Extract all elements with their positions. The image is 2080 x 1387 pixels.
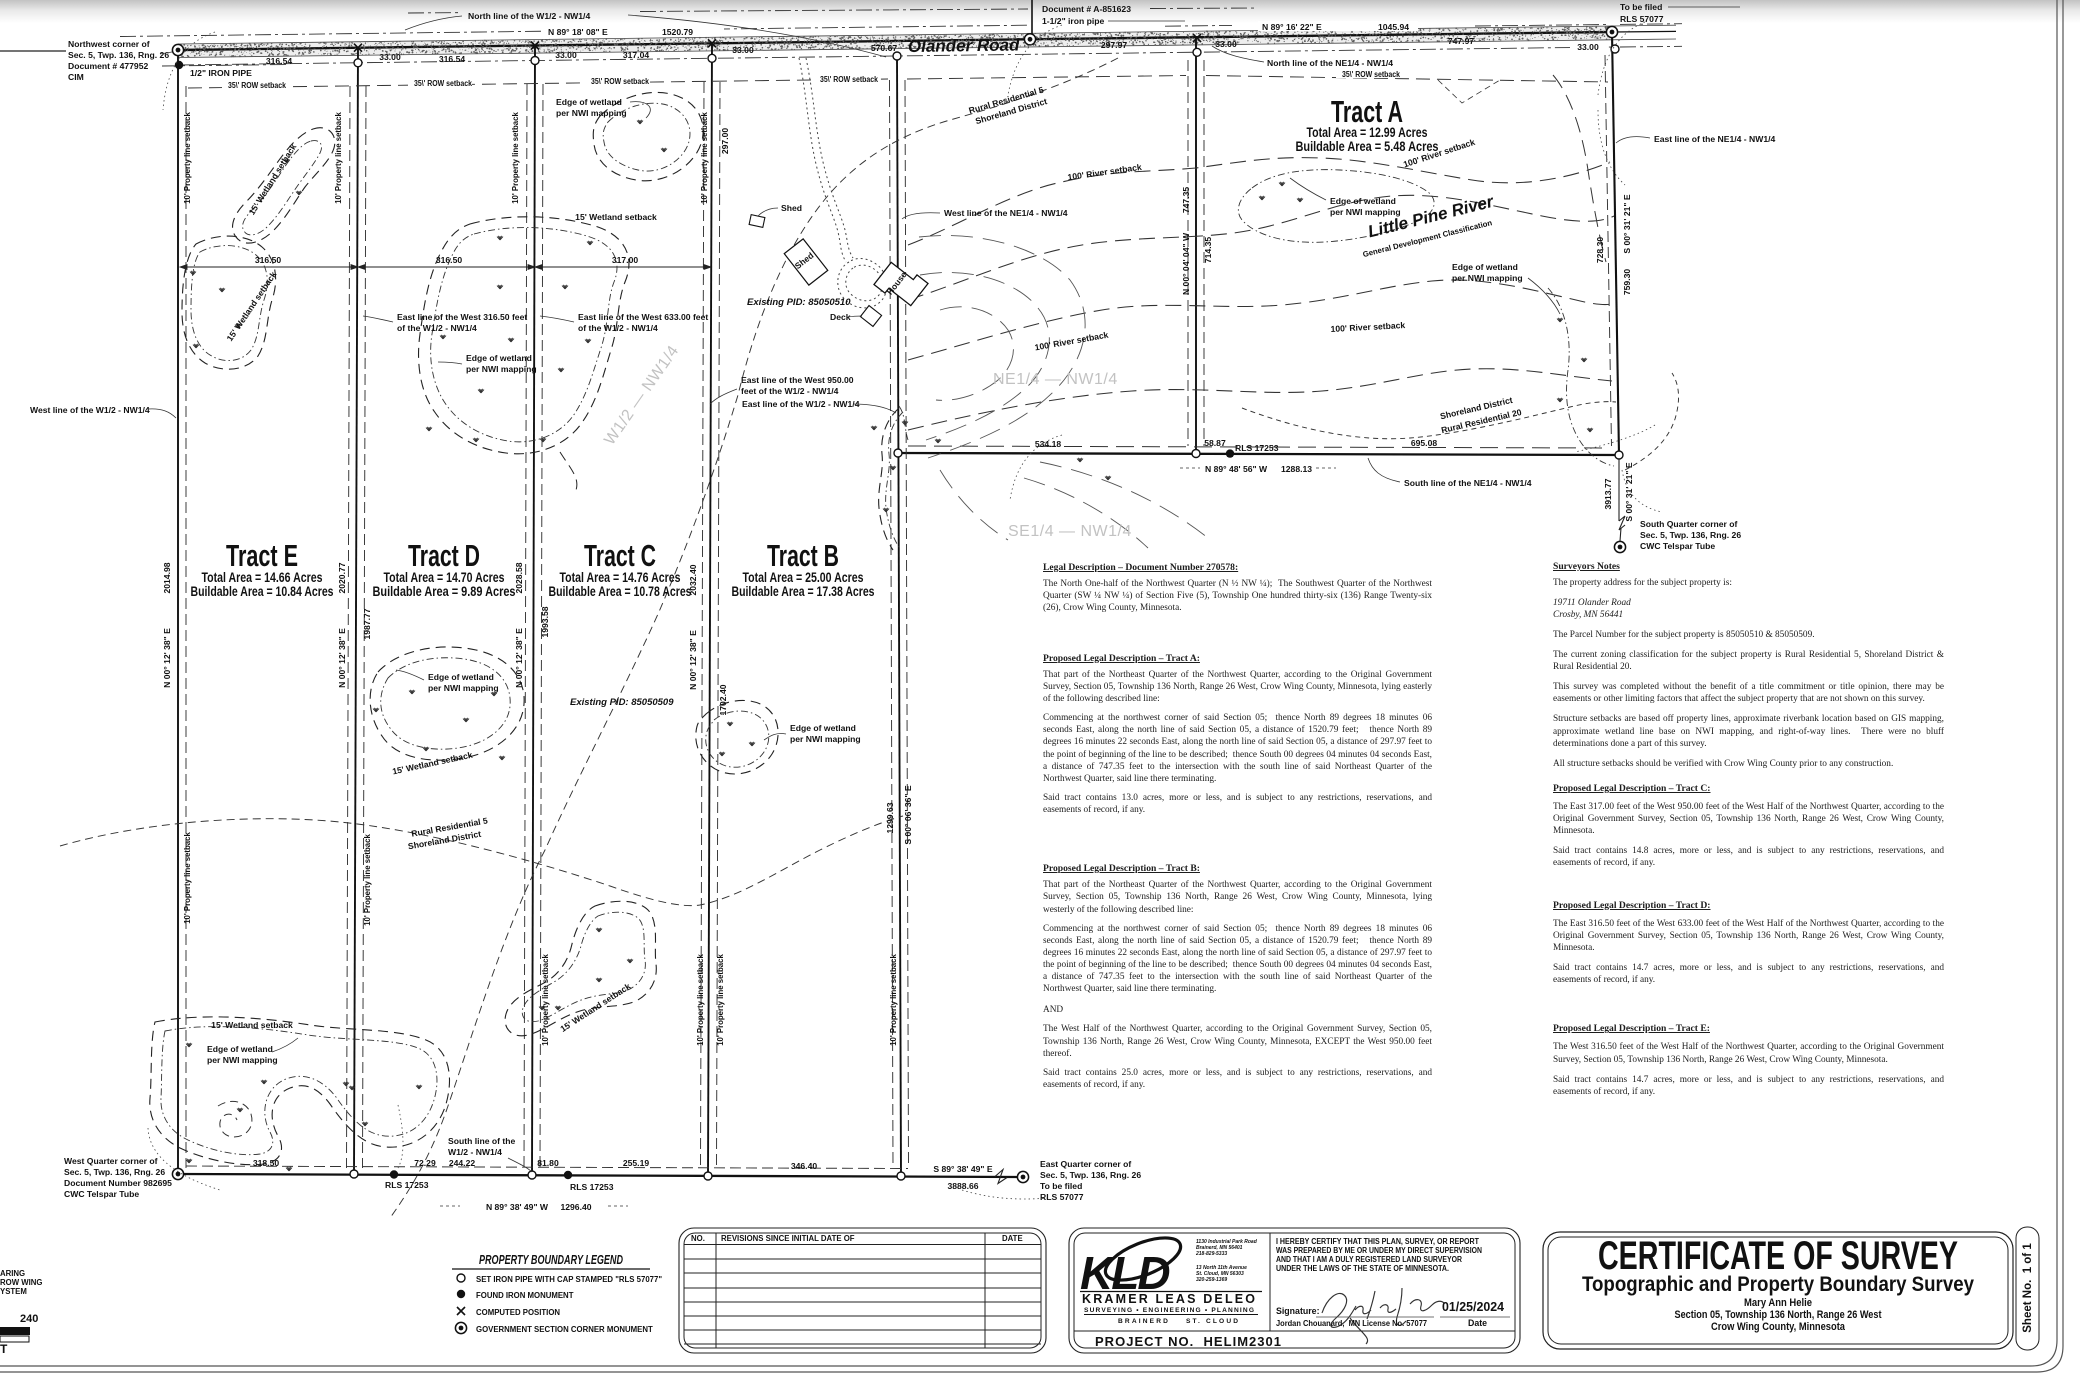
svg-text:S 00° 06' 36" E: S 00° 06' 36" E	[903, 785, 913, 845]
svg-text:1288.13: 1288.13	[1281, 464, 1312, 474]
svg-text:Northwest corner of: Northwest corner of	[68, 39, 150, 49]
svg-text:Total Area = 25.00 Acres: Total Area = 25.00 Acres	[743, 570, 864, 585]
svg-text:240: 240	[20, 1313, 38, 1325]
svg-text:244.22: 244.22	[449, 1158, 476, 1168]
svg-text:1-1/2" iron pipe: 1-1/2" iron pipe	[1042, 16, 1105, 26]
svg-text:2028.58: 2028.58	[514, 562, 524, 593]
svg-text:35\' ROW setback: 35\' ROW setback	[414, 78, 472, 88]
svg-text:Mary Ann Helie: Mary Ann Helie	[1744, 1297, 1812, 1309]
svg-text:3913.77: 3913.77	[1603, 478, 1613, 509]
svg-text:10' Property line setback: 10' Property line setback	[889, 954, 898, 1046]
svg-text:10' Property line setback: 10' Property line setback	[541, 954, 550, 1046]
svg-text:East line of the West 950.00: East line of the West 950.00	[741, 375, 854, 385]
svg-text:Document # 477952: Document # 477952	[68, 61, 148, 71]
svg-text:WAS PREPARED BY ME OR UNDER MY: WAS PREPARED BY ME OR UNDER MY DIRECT SU…	[1276, 1246, 1482, 1255]
svg-text:15' Wetland setback: 15' Wetland setback	[247, 142, 299, 217]
svg-text:per NWI mapping: per NWI mapping	[466, 364, 537, 374]
svg-text:317.00: 317.00	[612, 255, 639, 265]
svg-text:714.35: 714.35	[1203, 237, 1213, 264]
svg-text:759.30: 759.30	[1622, 269, 1632, 296]
svg-text:North line of the W1/2 - NW1/4: North line of the W1/2 - NW1/4	[468, 11, 590, 21]
svg-text:Edge of wetland: Edge of wetland	[1452, 262, 1518, 272]
svg-text:695.08: 695.08	[1411, 438, 1438, 448]
svg-text:Signature:: Signature:	[1276, 1306, 1320, 1316]
svg-text:West line of the W1/2 - NW1/4: West line of the W1/2 - NW1/4	[30, 405, 150, 415]
svg-text:10' Property line setback: 10' Property line setback	[696, 954, 705, 1046]
svg-text:Document # A-851623: Document # A-851623	[1042, 4, 1131, 14]
svg-text:10' Property line setback: 10' Property line setback	[511, 112, 520, 204]
svg-text:1299.63: 1299.63	[885, 802, 895, 833]
svg-text:15' Wetland setback: 15' Wetland setback	[391, 750, 473, 777]
svg-text:81.80: 81.80	[537, 1158, 559, 1168]
svg-text:N 89° 38' 49" W: N 89° 38' 49" W	[486, 1202, 549, 1212]
svg-text:255.19: 255.19	[623, 1158, 650, 1168]
svg-text:316.54: 316.54	[266, 56, 293, 66]
svg-text:534.18: 534.18	[1035, 439, 1062, 449]
svg-text:33.00: 33.00	[379, 52, 401, 62]
svg-text:East line of the W1/2 - NW1/4: East line of the W1/2 - NW1/4	[742, 399, 860, 409]
svg-text:10' Property line setback: 10' Property line setback	[363, 834, 372, 926]
svg-text:Existing PID: 85050510: Existing PID: 85050510	[747, 297, 851, 308]
svg-text:N 89° 48' 56" W: N 89° 48' 56" W	[1205, 464, 1268, 474]
svg-text:Shed: Shed	[781, 203, 802, 213]
svg-text:2020.77: 2020.77	[337, 562, 347, 593]
svg-text:Tract B: Tract B	[767, 538, 839, 573]
svg-text:346.40: 346.40	[791, 1161, 818, 1171]
svg-text:RLS 17253: RLS 17253	[385, 1180, 429, 1190]
svg-text:PROPERTY BOUNDARY LEGEND: PROPERTY BOUNDARY LEGEND	[479, 1252, 623, 1267]
svg-text:15' Wetland setback: 15' Wetland setback	[575, 212, 657, 222]
svg-text:South Quarter corner of: South Quarter corner of	[1640, 519, 1738, 529]
svg-text:West line of the NE1/4 - NW1/4: West line of the NE1/4 - NW1/4	[944, 208, 1068, 218]
svg-text:SURVEYING • ENGINEERING • PLAN: SURVEYING • ENGINEERING • PLANNING	[1084, 1307, 1254, 1314]
svg-text:ROW WING: ROW WING	[0, 1278, 42, 1287]
svg-text:AND THAT I AM A DULY REGISTERE: AND THAT I AM A DULY REGISTERED LAND SUR…	[1276, 1255, 1462, 1264]
svg-text:10' Property line setback: 10' Property line setback	[700, 112, 709, 204]
svg-text:South line of the: South line of the	[448, 1136, 516, 1146]
svg-text:10' Property line setback: 10' Property line setback	[334, 112, 343, 204]
svg-text:Total Area = 14.76 Acres: Total Area = 14.76 Acres	[560, 570, 681, 585]
svg-text:To be filed: To be filed	[1040, 1181, 1082, 1191]
svg-text:100' River setback: 100' River setback	[1067, 162, 1143, 182]
svg-text:N 00° 12' 38" E: N 00° 12' 38" E	[688, 630, 698, 690]
svg-text:Sec. 5, Twp. 136, Rng. 26: Sec. 5, Twp. 136, Rng. 26	[68, 50, 169, 60]
svg-text:of the W1/2 - NW1/4: of the W1/2 - NW1/4	[578, 323, 658, 333]
svg-text:Document Number 982695: Document Number 982695	[64, 1178, 172, 1188]
svg-text:15' Wetland setback: 15' Wetland setback	[558, 981, 632, 1034]
svg-text:Edge of wetland: Edge of wetland	[466, 353, 532, 363]
svg-text:North line of the NE1/4 - NW1/: North line of the NE1/4 - NW1/4	[1267, 58, 1393, 68]
svg-text:Topographic and Property Bound: Topographic and Property Boundary Survey	[1582, 1272, 1974, 1296]
svg-text:Tract D: Tract D	[408, 538, 480, 573]
svg-text:Buildable Area = 5.48 Acres: Buildable Area = 5.48 Acres	[1296, 139, 1439, 154]
svg-text:FOUND IRON MONUMENT: FOUND IRON MONUMENT	[476, 1291, 574, 1300]
svg-text:Jordan Chouanard, MN License: Jordan Chouanard, MN License No. 57077	[1276, 1318, 1427, 1328]
svg-text:1/2" IRON PIPE: 1/2" IRON PIPE	[190, 68, 252, 78]
svg-text:N 89° 18' 08" E: N 89° 18' 08" E	[548, 27, 608, 37]
svg-text:NO.: NO.	[691, 1234, 705, 1243]
svg-text:feet of the W1/2 - NW1/4: feet of the W1/2 - NW1/4	[741, 386, 839, 396]
svg-text:East Quarter corner of: East Quarter corner of	[1040, 1159, 1131, 1169]
svg-text:East line of the NE1/4 - NW1/4: East line of the NE1/4 - NW1/4	[1654, 134, 1776, 144]
svg-text:316.50: 316.50	[436, 255, 463, 265]
svg-text:S 00° 31' 21" E: S 00° 31' 21" E	[1624, 462, 1634, 522]
svg-text:per NWI mapping: per NWI mapping	[428, 683, 499, 693]
svg-text:Total Area = 14.66 Acres: Total Area = 14.66 Acres	[202, 570, 323, 585]
svg-text:297.00: 297.00	[720, 128, 730, 155]
svg-text:RLS 17253: RLS 17253	[570, 1182, 614, 1192]
svg-text:Sheet No. 1 of 1: Sheet No. 1 of 1	[2022, 1243, 2034, 1333]
svg-text:CIM: CIM	[68, 72, 84, 82]
svg-text:Edge of wetland: Edge of wetland	[556, 97, 622, 107]
svg-text:33.00: 33.00	[1577, 42, 1599, 52]
svg-text:1520.79: 1520.79	[662, 27, 693, 37]
svg-text:Sec. 5, Twp. 136, Rng. 26: Sec. 5, Twp. 136, Rng. 26	[1640, 530, 1741, 540]
svg-text:Sec. 5, Twp. 136, Rng. 26: Sec. 5, Twp. 136, Rng. 26	[64, 1167, 165, 1177]
svg-text:GOVERNMENT SECTION CORNER MONU: GOVERNMENT SECTION CORNER MONUMENT	[476, 1325, 653, 1334]
svg-text:NE1/4 — NW1/4: NE1/4 — NW1/4	[993, 371, 1118, 388]
svg-text:per NWI mapping: per NWI mapping	[207, 1055, 278, 1065]
svg-text:N 00° 12' 38" E: N 00° 12' 38" E	[337, 628, 347, 688]
svg-text:747.35: 747.35	[1181, 187, 1191, 214]
svg-text:N 00° 12' 38" E: N 00° 12' 38" E	[162, 628, 172, 688]
svg-text:Sec. 5, Twp. 136, Rng. 26: Sec. 5, Twp. 136, Rng. 26	[1040, 1170, 1141, 1180]
svg-text:COMPUTED POSITION: COMPUTED POSITION	[476, 1308, 560, 1317]
svg-text:10' Property line setback: 10' Property line setback	[183, 832, 192, 924]
svg-text:T: T	[0, 1342, 8, 1356]
svg-text:Buildable Area = 9.89 Acres: Buildable Area = 9.89 Acres	[373, 584, 516, 599]
svg-text:2014.98: 2014.98	[162, 562, 172, 593]
svg-text:SET IRON PIPE WITH CAP STAMPED: SET IRON PIPE WITH CAP STAMPED "RLS 5707…	[476, 1275, 662, 1284]
svg-text:58.87: 58.87	[1204, 438, 1226, 448]
svg-text:East line of the West 633.00 f: East line of the West 633.00 feet	[578, 312, 708, 322]
svg-text:per NWI mapping: per NWI mapping	[1330, 207, 1401, 217]
svg-text:100' River setback: 100' River setback	[1034, 330, 1109, 353]
svg-text:Deck: Deck	[830, 312, 851, 322]
svg-text:297.97: 297.97	[1101, 40, 1128, 50]
svg-text:West Quarter corner of: West Quarter corner of	[64, 1156, 158, 1166]
svg-text:East line of the West 316.50 f: East line of the West 316.50 feet	[397, 312, 527, 322]
svg-text:per NWI mapping: per NWI mapping	[790, 734, 861, 744]
svg-text:BRAINERD ST. CLOUD: BRAINERD ST. CLOUD	[1118, 1318, 1238, 1325]
svg-text:DATE: DATE	[1002, 1234, 1023, 1243]
svg-text:I HEREBY CERTIFY THAT THIS PLA: I HEREBY CERTIFY THAT THIS PLAN, SURVEY,…	[1276, 1237, 1479, 1246]
svg-text:Total Area = 14.70 Acres: Total Area = 14.70 Acres	[384, 570, 505, 585]
svg-text:RLS 57077: RLS 57077	[1040, 1192, 1084, 1202]
svg-text:10' Property line setback: 10' Property line setback	[183, 112, 192, 204]
svg-text:316.54: 316.54	[439, 54, 466, 64]
svg-text:South line of the NE1/4 - NW1/: South line of the NE1/4 - NW1/4	[1404, 478, 1532, 488]
svg-text:S 00° 31' 21" E: S 00° 31' 21" E	[1622, 194, 1632, 254]
svg-text:REVISIONS SINCE INITIAL DATE O: REVISIONS SINCE INITIAL DATE OF	[721, 1234, 855, 1243]
svg-text:W1/2 - NW1/4: W1/2 - NW1/4	[448, 1147, 502, 1157]
svg-text:316.50: 316.50	[255, 255, 282, 265]
svg-text:CWC Telspar Tube: CWC Telspar Tube	[64, 1189, 139, 1199]
svg-text:570.67: 570.67	[871, 43, 898, 53]
svg-text:728.30: 728.30	[1595, 237, 1605, 264]
svg-text:To be filed: To be filed	[1620, 2, 1662, 12]
svg-text:Buildable Area = 10.84 Acres: Buildable Area = 10.84 Acres	[191, 584, 334, 599]
svg-text:RLS 57077: RLS 57077	[1620, 14, 1664, 24]
svg-text:Edge of wetland: Edge of wetland	[790, 723, 856, 733]
svg-text:318.50: 318.50	[253, 1158, 280, 1168]
svg-text:per NWI mapping: per NWI mapping	[556, 108, 627, 118]
svg-text:218-829-5333: 218-829-5333	[1195, 1251, 1227, 1257]
svg-text:100' River setback: 100' River setback	[1330, 320, 1405, 334]
svg-text:UNDER THE LAWS OF THE STATE O: UNDER THE LAWS OF THE STATE OF MINNESOTA…	[1276, 1264, 1449, 1273]
svg-text:N 00° 12' 38" E: N 00° 12' 38" E	[514, 628, 524, 688]
svg-text:ARING: ARING	[0, 1269, 25, 1278]
svg-text:35\' ROW setback: 35\' ROW setback	[228, 80, 286, 90]
svg-text:35\' ROW setback: 35\' ROW setback	[1342, 69, 1400, 79]
svg-text:Edge of wetland: Edge of wetland	[1330, 196, 1396, 206]
svg-text:Crow Wing County, Minnesota: Crow Wing County, Minnesota	[1711, 1321, 1846, 1333]
svg-text:1045.94: 1045.94	[1378, 22, 1409, 32]
svg-text:RLS 17253: RLS 17253	[1235, 443, 1279, 453]
svg-text:33.00: 33.00	[732, 45, 754, 55]
svg-text:KRAMER LEAS DELEO: KRAMER LEAS DELEO	[1082, 1292, 1255, 1306]
svg-text:33.00: 33.00	[1215, 39, 1237, 49]
svg-text:320-259-1369: 320-259-1369	[1196, 1277, 1227, 1283]
svg-text:1987.77: 1987.77	[362, 608, 372, 639]
svg-text:per NWI mapping: per NWI mapping	[1452, 273, 1523, 283]
svg-text:3888.66: 3888.66	[947, 1181, 978, 1191]
svg-text:Tract E: Tract E	[226, 538, 298, 573]
svg-text:Existing PID: 85050509: Existing PID: 85050509	[570, 697, 674, 708]
svg-text:PROJECT NO. HELIM2301: PROJECT NO. HELIM2301	[1095, 1334, 1281, 1349]
svg-text:N 00° 04' 04" W: N 00° 04' 04" W	[1181, 232, 1191, 295]
svg-text:N 89° 16' 22" E: N 89° 16' 22" E	[1262, 22, 1322, 32]
svg-text:72.29: 72.29	[414, 1158, 436, 1168]
svg-text:Date: Date	[1468, 1318, 1487, 1328]
svg-text:of the W1/2 - NW1/4: of the W1/2 - NW1/4	[397, 323, 477, 333]
svg-text:Buildable Area = 17.38 Acres: Buildable Area = 17.38 Acres	[732, 584, 875, 599]
svg-text:Edge of wetland: Edge of wetland	[207, 1044, 273, 1054]
svg-text:10' Property line setback: 10' Property line setback	[716, 954, 725, 1046]
svg-text:SE1/4 — NW1/4: SE1/4 — NW1/4	[1008, 523, 1132, 540]
svg-text:35\' ROW setback: 35\' ROW setback	[820, 74, 878, 84]
svg-text:317.04: 317.04	[623, 50, 650, 60]
svg-text:1702.40: 1702.40	[718, 684, 728, 715]
svg-text:Section 05, Township 136 North: Section 05, Township 136 North, Range 26…	[1675, 1309, 1882, 1321]
svg-text:CWC Telspar Tube: CWC Telspar Tube	[1640, 541, 1715, 551]
svg-text:01/25/2024: 01/25/2024	[1442, 1300, 1504, 1314]
svg-text:1993.58: 1993.58	[540, 606, 550, 637]
svg-text:35\' ROW setback: 35\' ROW setback	[591, 76, 649, 86]
svg-text:747.97: 747.97	[1448, 36, 1475, 46]
svg-text:33.00: 33.00	[555, 50, 577, 60]
svg-text:Total Area = 12.99 Acres: Total Area = 12.99 Acres	[1307, 125, 1428, 140]
svg-text:S 89° 38' 49" E: S 89° 38' 49" E	[933, 1164, 993, 1174]
svg-text:Tract A: Tract A	[1331, 94, 1403, 129]
svg-text:YSTEM: YSTEM	[0, 1287, 27, 1296]
svg-text:W1/2 — NW1/4: W1/2 — NW1/4	[601, 343, 682, 449]
svg-text:Olander Road: Olander Road	[908, 35, 1020, 56]
svg-text:Buildable Area = 10.78 Acres: Buildable Area = 10.78 Acres	[549, 584, 692, 599]
svg-text:15' Wetland setback: 15' Wetland setback	[211, 1020, 293, 1030]
svg-text:1296.40: 1296.40	[560, 1202, 591, 1212]
svg-text:Edge of wetland: Edge of wetland	[428, 672, 494, 682]
svg-text:Tract C: Tract C	[584, 538, 656, 573]
